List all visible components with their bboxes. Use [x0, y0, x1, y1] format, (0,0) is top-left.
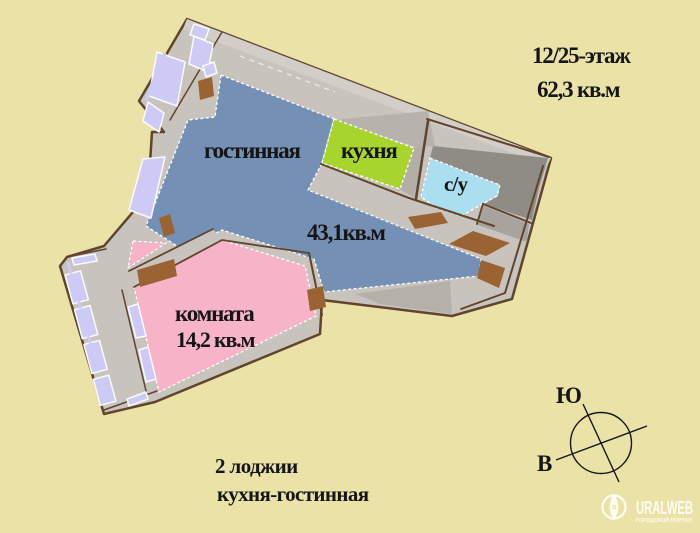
- svg-text:43,1кв.м: 43,1кв.м: [307, 220, 385, 245]
- svg-text:14,2 кв.м: 14,2 кв.м: [176, 327, 255, 352]
- svg-text:кухня-гостинная: кухня-гостинная: [217, 482, 369, 506]
- svg-text:гостинная: гостинная: [204, 138, 301, 163]
- svg-text:URALWEB: URALWEB: [636, 497, 693, 519]
- svg-text:12/25-этаж: 12/25-этаж: [532, 43, 631, 68]
- svg-text:кухня: кухня: [341, 138, 397, 163]
- svg-text:Ю: Ю: [556, 383, 582, 408]
- svg-text:2 лоджии: 2 лоджии: [215, 454, 298, 478]
- svg-text:ГОРОДСКОЙ ПОРТАЛ: ГОРОДСКОЙ ПОРТАЛ: [636, 516, 692, 524]
- svg-text:с/у: с/у: [444, 172, 469, 196]
- svg-text:В: В: [537, 451, 552, 476]
- svg-text:62,3 кв.м: 62,3 кв.м: [537, 77, 620, 102]
- svg-text:комната: комната: [175, 301, 255, 326]
